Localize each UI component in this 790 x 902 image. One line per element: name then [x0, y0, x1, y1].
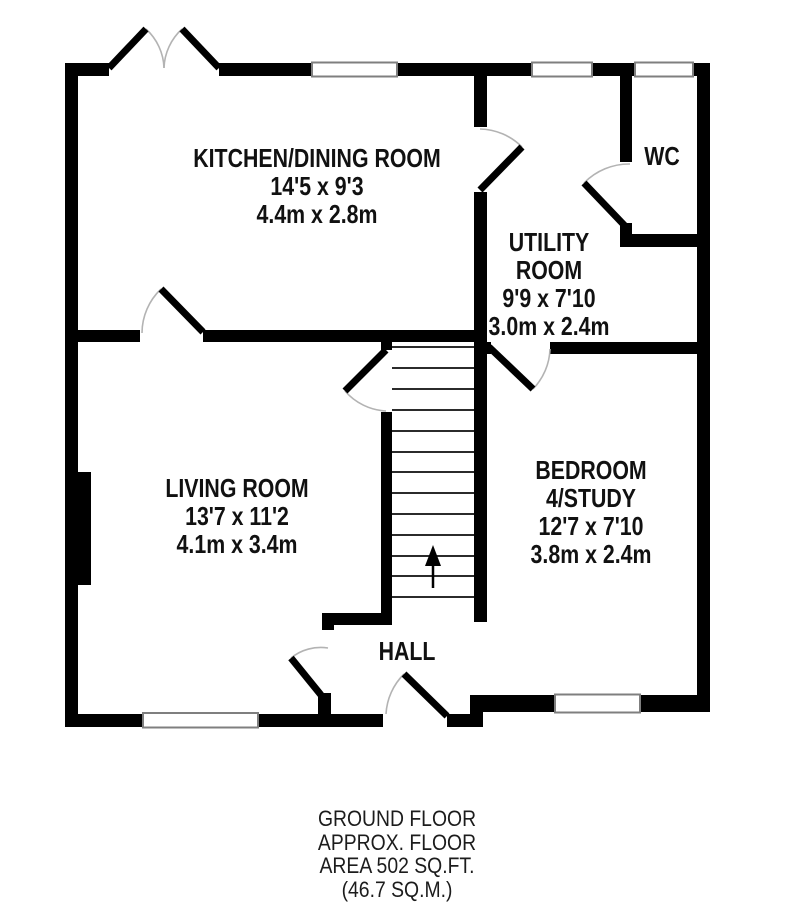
- wall-left: [65, 63, 78, 727]
- wall-hall-step-v: [322, 613, 334, 630]
- door-leaf-kitchen-living: [161, 289, 203, 332]
- room-name: KITCHEN/DINING ROOM: [193, 144, 441, 172]
- wall-wc-bottom: [620, 234, 697, 247]
- room-dims-metric: 3.8m x 2.4m: [531, 540, 652, 568]
- door-swing-arc: [146, 29, 164, 68]
- room-label-kitchen: KITCHEN/DINING ROOM 14'5 x 9'3 4.4m x 2.…: [166, 144, 468, 228]
- window-living-bottom: [143, 713, 258, 728]
- door-swing-arc: [164, 29, 182, 68]
- caption-line: APPROX. FLOOR: [318, 831, 476, 855]
- wall-divider-kitchen-utility-a: [474, 76, 487, 127]
- chimney-breast: [78, 472, 91, 585]
- room-label-living: LIVING ROOM 13'7 x 11'2 4.1m x 3.4m: [150, 474, 325, 558]
- door-swing-arc: [386, 674, 404, 714]
- wall-right: [697, 63, 710, 712]
- door-swing-arc: [142, 289, 161, 333]
- door-swing-arc: [345, 391, 386, 411]
- room-label-utility: UTILITY ROOM 9'9 x 7'10 3.0m x 2.4m: [475, 228, 622, 340]
- room-dims-imperial: 13'7 x 11'2: [165, 502, 308, 530]
- window-kitchen-top: [312, 63, 397, 77]
- floor-plan: KITCHEN/DINING ROOM 14'5 x 9'3 4.4m x 2.…: [0, 0, 790, 900]
- window-utility-top: [532, 63, 592, 77]
- wall-divider-kitchen-living-b: [203, 330, 487, 342]
- room-name: UTILITY: [489, 228, 610, 256]
- room-name: LIVING ROOM: [165, 474, 308, 502]
- room-name: ROOM: [489, 256, 610, 284]
- wall-hall-door-stub: [318, 693, 331, 714]
- door-leaf-hall-living: [291, 658, 321, 695]
- door-leaf-french-right: [182, 29, 219, 68]
- wall-stairs-left: [381, 412, 392, 613]
- door-leaf-front-door: [404, 674, 447, 716]
- window-bedroom-bottom: [555, 695, 640, 713]
- room-name: 4/STUDY: [531, 484, 652, 512]
- room-name: HALL: [379, 637, 436, 665]
- room-dims-imperial: 9'9 x 7'10: [489, 284, 610, 312]
- wall-divider-kitchen-living-a: [65, 330, 140, 342]
- door-leaves: [109, 29, 626, 716]
- floor-caption: GROUND FLOOR APPROX. FLOOR AREA 502 SQ.F…: [307, 807, 487, 901]
- room-name: WC: [644, 142, 680, 170]
- wall-stairs-right: [474, 342, 487, 622]
- room-dims-metric: 4.1m x 3.4m: [165, 530, 308, 558]
- wall-divider-bedroom-utility: [550, 342, 710, 354]
- floor-plan-canvas: [0, 0, 790, 900]
- room-name: BEDROOM: [531, 456, 652, 484]
- door-leaf-kitchen-utility: [480, 147, 522, 190]
- room-dims-metric: 4.4m x 2.8m: [193, 200, 441, 228]
- wall-bottom-connector: [470, 695, 483, 727]
- wall-wc-left: [620, 76, 632, 162]
- door-swing-arc: [480, 129, 522, 147]
- door-leaf-wc: [584, 183, 626, 227]
- window-wc-top: [635, 63, 693, 77]
- room-dims-imperial: 14'5 x 9'3: [193, 172, 441, 200]
- room-label-bedroom: BEDROOM 4/STUDY 12'7 x 7'10 3.8m x 2.4m: [517, 456, 664, 568]
- room-label-wc: WC: [640, 142, 683, 170]
- door-swing-arc: [584, 164, 630, 183]
- stairs-direction-arrow: [425, 545, 441, 588]
- door-leaf-bedroom: [489, 347, 533, 389]
- room-dims-imperial: 12'7 x 7'10: [531, 512, 652, 540]
- room-dims-metric: 3.0m x 2.4m: [489, 312, 610, 340]
- door-leaf-living-stairs: [345, 350, 386, 391]
- caption-line: AREA 502 SQ.FT.: [318, 854, 476, 878]
- caption-line: (46.7 SQ.M.): [318, 878, 476, 902]
- room-label-hall: HALL: [372, 637, 441, 665]
- door-leaf-french-left: [109, 29, 146, 68]
- door-swing-arc: [291, 647, 328, 658]
- door-swing-arc: [533, 349, 550, 389]
- caption-line: GROUND FLOOR: [318, 807, 476, 831]
